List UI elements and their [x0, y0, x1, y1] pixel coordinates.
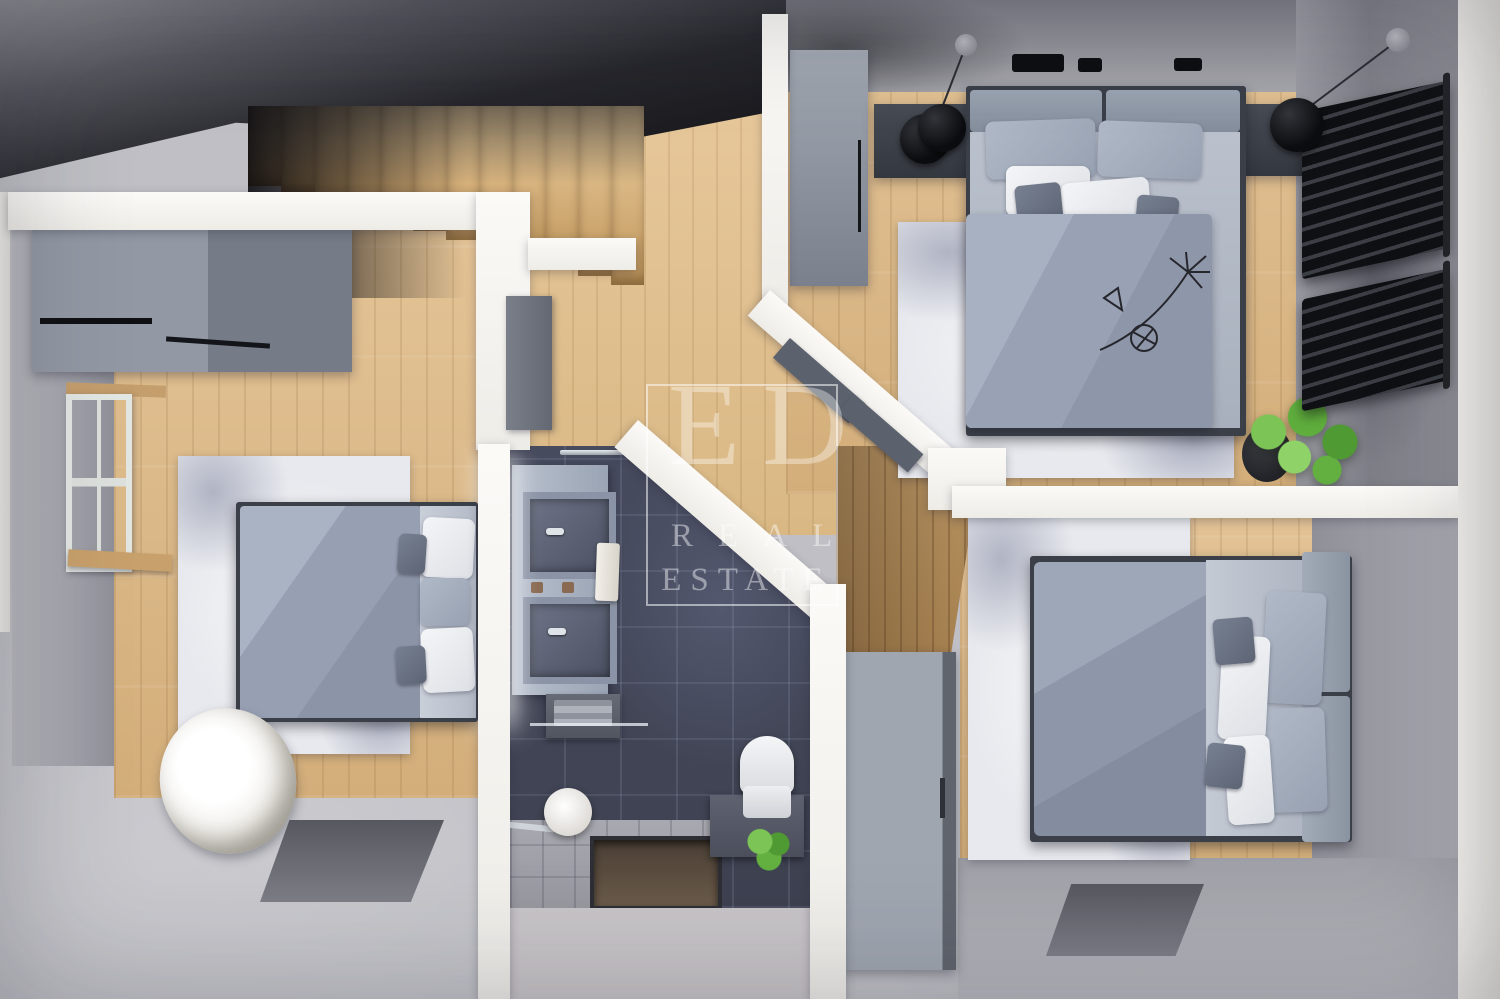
- toilet-tank: [743, 786, 791, 818]
- potted-plant: [1236, 392, 1366, 492]
- pillow: [420, 627, 475, 694]
- soap-dish: [562, 582, 574, 593]
- outer-wall-left: [0, 192, 10, 632]
- bathroom-lower-floor: [480, 908, 846, 999]
- tall-wardrobe: [790, 50, 868, 286]
- door-left-bedroom: [506, 296, 552, 430]
- pillow: [1097, 120, 1203, 180]
- pendant-lamp: [1270, 98, 1324, 152]
- half-wall-ledge: [528, 238, 636, 270]
- pendant-lamp: [918, 104, 966, 152]
- lamp-canopy: [955, 34, 977, 56]
- balustrade-wall: [8, 192, 480, 230]
- bathroom-plant: [744, 824, 794, 874]
- faucet: [548, 628, 566, 635]
- wall-radiator: [1302, 80, 1448, 279]
- accent-cushion: [1212, 616, 1256, 665]
- accent-cushion: [1204, 742, 1246, 790]
- radiator-rail: [1443, 72, 1450, 257]
- soap-dish: [531, 582, 543, 593]
- bathroom-wall-right: [810, 584, 846, 999]
- pillow: [1264, 707, 1328, 813]
- radiator-rail: [1443, 260, 1450, 389]
- wall-top-center: [762, 14, 788, 316]
- faucet: [546, 528, 564, 535]
- bottomright-concrete-floor: [958, 858, 1460, 999]
- stairs-shadow-top: [248, 106, 644, 183]
- watermark-line2: ESTATE: [646, 564, 838, 597]
- floor-cutout: [260, 820, 444, 902]
- sink-basin: [523, 597, 617, 684]
- wall-bottomright-bedroom: [952, 486, 1460, 518]
- bed-left-duvet: [240, 506, 422, 718]
- low-wardrobe: [32, 226, 352, 372]
- outer-wall-right: [1458, 0, 1500, 999]
- window: [66, 394, 132, 572]
- wall-speaker: [1078, 58, 1102, 72]
- headboard-cushion: [395, 645, 427, 685]
- shower-tray-recess: [590, 836, 722, 910]
- watermark-monogram: ED: [646, 366, 838, 484]
- pillow: [1261, 591, 1327, 706]
- pillow: [420, 517, 475, 580]
- watermark: ED REAL ESTATE: [646, 372, 838, 612]
- lamp-canopy: [1386, 28, 1410, 52]
- hand-towel: [595, 543, 620, 602]
- headboard-cushion: [397, 533, 428, 575]
- pillow: [420, 578, 470, 626]
- wire-flower-decor: [1092, 246, 1214, 360]
- glass-shelf: [530, 723, 648, 726]
- cabinet-handle: [940, 778, 945, 818]
- watermark-line1: REAL: [646, 520, 838, 553]
- storage-cabinet: [842, 652, 956, 970]
- toilet-paper-roll: [544, 788, 592, 836]
- bathroom-wall-left: [478, 444, 510, 999]
- tall-wardrobe-handle: [858, 140, 861, 232]
- floor-plan-render: ED REAL ESTATE: [0, 0, 1500, 999]
- wall-speaker: [1012, 54, 1064, 72]
- wall-speaker: [1174, 58, 1202, 71]
- bed-bottomright-duvet: [1034, 562, 1212, 836]
- wardrobe-handle: [40, 318, 152, 324]
